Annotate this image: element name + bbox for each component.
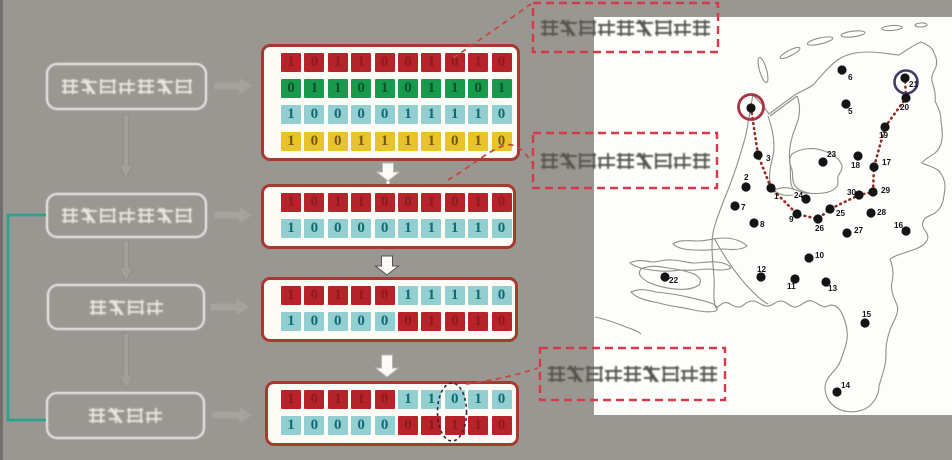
svg-text:28: 28 (877, 208, 887, 217)
svg-text:25: 25 (836, 209, 846, 218)
svg-text:26: 26 (815, 224, 825, 233)
svg-text:22: 22 (669, 276, 679, 285)
svg-text:5: 5 (848, 107, 853, 116)
svg-text:3: 3 (766, 154, 771, 163)
svg-text:17: 17 (882, 158, 892, 167)
svg-text:19: 19 (879, 131, 889, 140)
svg-text:12: 12 (757, 265, 767, 274)
svg-text:18: 18 (851, 161, 861, 170)
svg-text:13: 13 (828, 284, 838, 293)
svg-text:27: 27 (854, 226, 864, 235)
svg-text:21: 21 (909, 80, 919, 89)
svg-text:29: 29 (881, 186, 891, 195)
svg-text:16: 16 (894, 221, 904, 230)
svg-text:1: 1 (774, 192, 779, 201)
svg-text:2: 2 (744, 173, 749, 182)
svg-text:10: 10 (815, 251, 825, 260)
svg-text:8: 8 (760, 220, 765, 229)
svg-text:11: 11 (787, 282, 796, 291)
svg-text:23: 23 (827, 150, 837, 159)
svg-text:9: 9 (789, 215, 794, 224)
svg-text:15: 15 (862, 310, 872, 319)
svg-text:24: 24 (794, 191, 804, 200)
svg-text:7: 7 (741, 203, 746, 212)
svg-text:6: 6 (848, 73, 853, 82)
svg-text:30: 30 (847, 188, 857, 197)
svg-text:20: 20 (900, 103, 910, 112)
svg-text:14: 14 (841, 381, 851, 390)
